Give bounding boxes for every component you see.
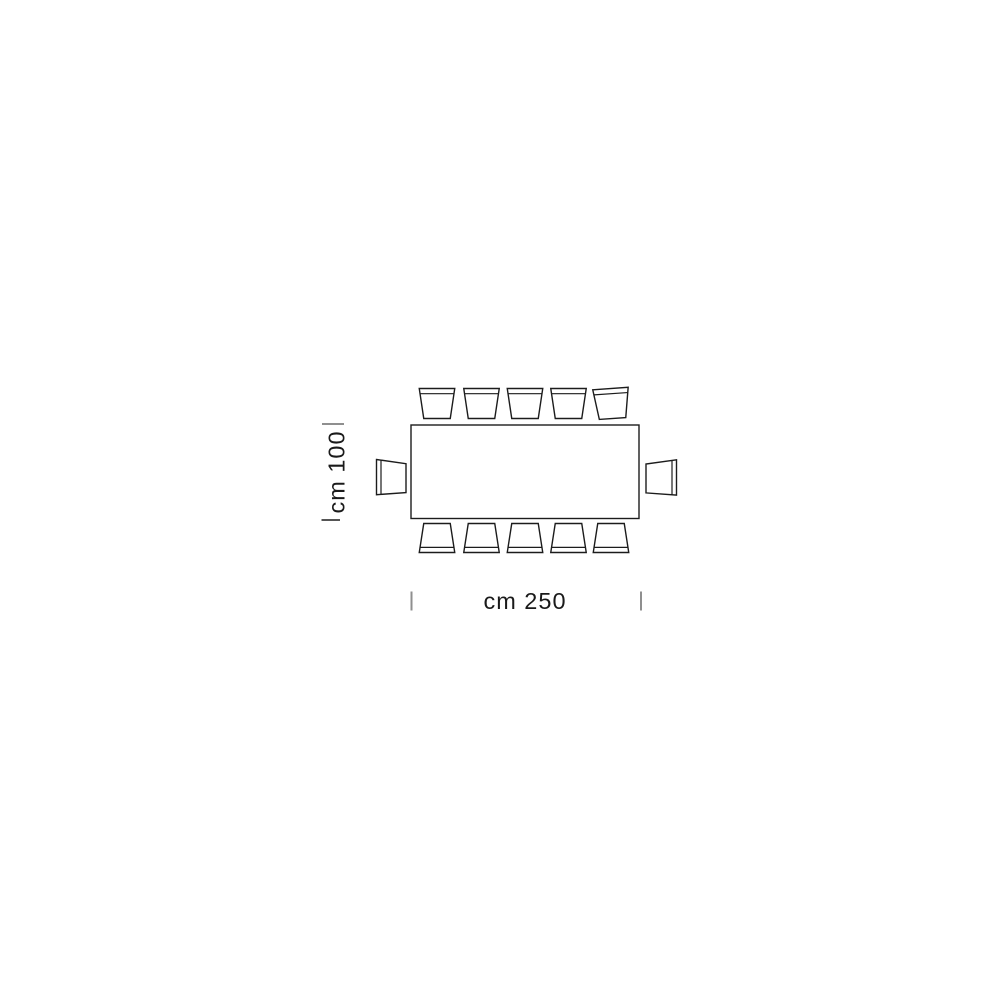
chair-top-5 <box>593 387 631 419</box>
diagram-canvas: cm 100 cm 250 <box>0 0 1000 1000</box>
chair-bottom-1 <box>419 524 455 553</box>
chair-top-4 <box>551 389 587 419</box>
chair-bottom-2 <box>464 524 500 553</box>
chair-top-1 <box>419 389 455 419</box>
chair-bottom-4 <box>551 524 587 553</box>
table-plan-svg: cm 100 cm 250 <box>0 0 1000 1000</box>
dining-table-outline <box>411 425 639 519</box>
chair-bottom-5 <box>593 524 629 553</box>
chair-right <box>646 460 677 495</box>
depth-dim-label: cm 100 <box>324 430 350 513</box>
width-dim-label: cm 250 <box>483 588 566 614</box>
chair-left <box>377 460 407 495</box>
chair-top-3 <box>507 389 543 419</box>
chair-bottom-3 <box>507 524 543 553</box>
chair-top-2 <box>464 389 500 419</box>
